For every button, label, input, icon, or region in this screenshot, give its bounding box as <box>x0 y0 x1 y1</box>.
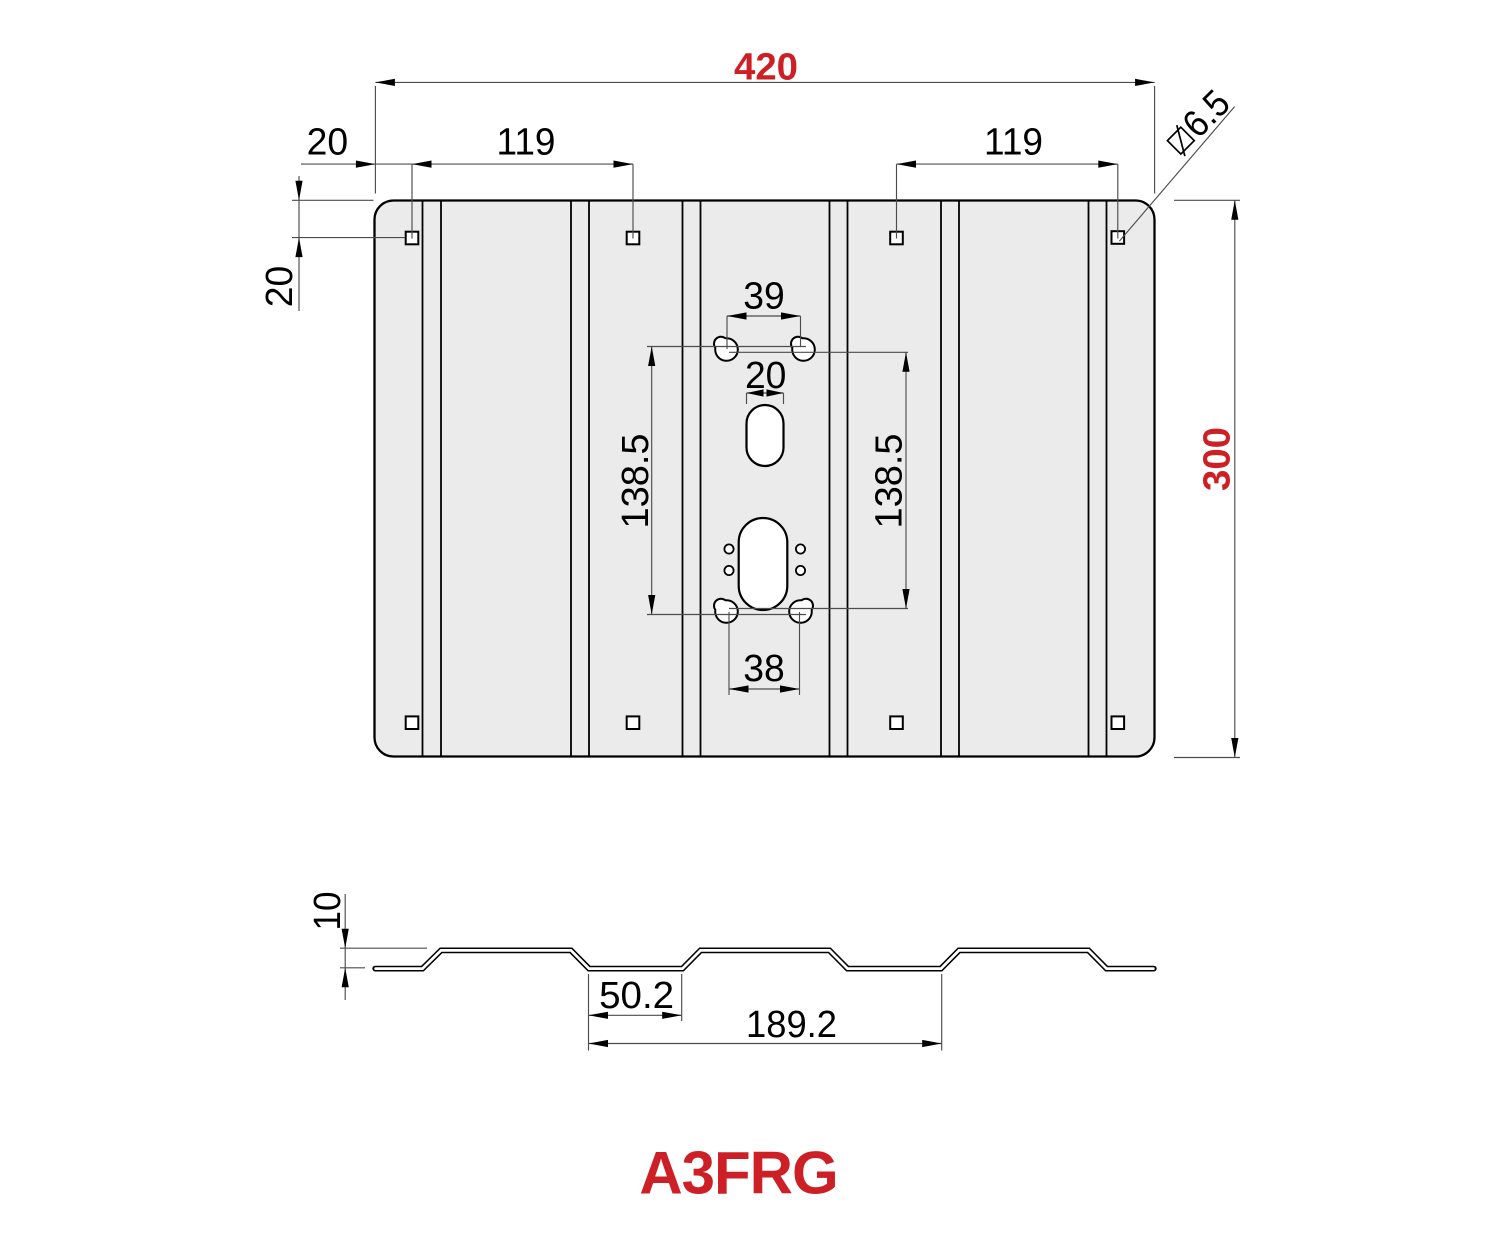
svg-text:420: 420 <box>734 47 798 89</box>
svg-text:138.5: 138.5 <box>868 434 910 529</box>
svg-text:39: 39 <box>743 276 785 318</box>
svg-text:300: 300 <box>1197 427 1239 491</box>
svg-text:10: 10 <box>307 892 349 931</box>
svg-text:119: 119 <box>984 122 1043 164</box>
svg-text:50.2: 50.2 <box>599 975 674 1017</box>
svg-text:38: 38 <box>743 648 785 690</box>
svg-text:119: 119 <box>497 122 556 164</box>
svg-text:189.2: 189.2 <box>746 1004 837 1046</box>
svg-text:138.5: 138.5 <box>615 434 657 529</box>
svg-text:20: 20 <box>745 355 787 397</box>
svg-text:A3FRG: A3FRG <box>639 1140 837 1207</box>
svg-text:20: 20 <box>307 122 349 164</box>
svg-text:20: 20 <box>259 266 301 308</box>
